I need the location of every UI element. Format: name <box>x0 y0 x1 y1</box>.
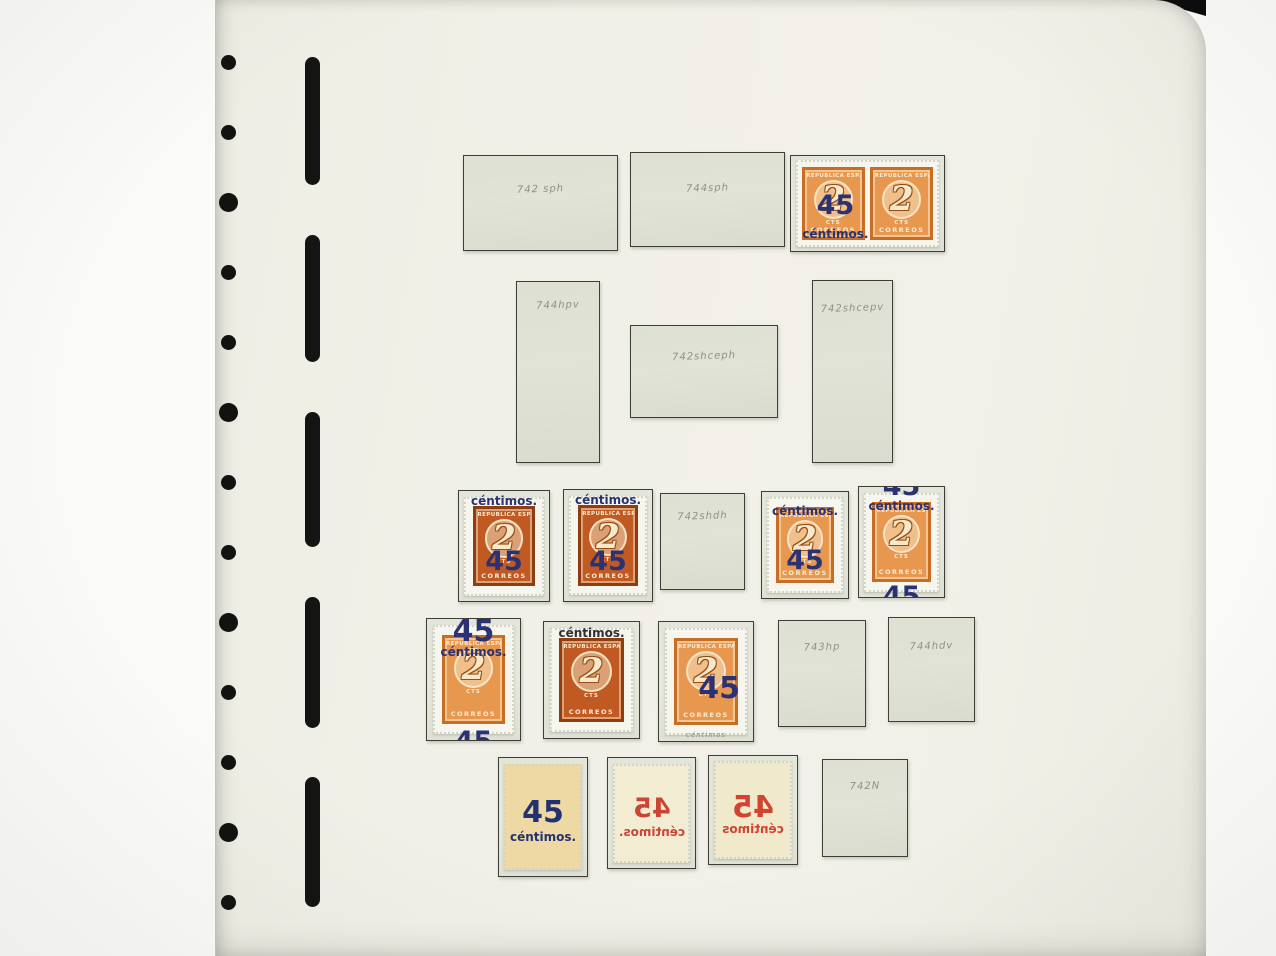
mount-annotation: 742N <box>823 780 907 794</box>
stamp-mount: 744hdv <box>888 617 975 722</box>
stamp-overprint-centimos: céntimos. <box>868 500 934 512</box>
binding-slot <box>305 777 320 907</box>
stamp-design: REPUBLICA ESPAÑOLA2CTSCORREOS <box>559 638 624 722</box>
mount-annotation: 744hpv <box>517 299 599 313</box>
binder-hole <box>221 265 236 280</box>
stamp: REPUBLICA ESPAÑOLA2CTSCORREOScéntimos.45 <box>563 489 653 602</box>
stamp-unit-label: CTS <box>894 554 909 560</box>
mount-annotation: 744sph <box>631 180 784 196</box>
stamp-correos-label: CORREOS <box>451 710 496 718</box>
stamp-overprint-45: 45 <box>817 192 855 219</box>
binder-hole <box>221 755 236 770</box>
stamp-back: 45céntimos. <box>498 757 588 877</box>
stamp-overprint-45: 45 <box>522 798 564 828</box>
stamp-unit-label: CTS <box>584 693 599 699</box>
mount-annotation: 742 sph <box>464 182 617 198</box>
stamp-country-label: REPUBLICA ESPAÑOLA <box>806 173 860 179</box>
stamp: REPUBLICA ESPAÑOLA2CTSCORREOScéntimos.45 <box>458 490 550 602</box>
stamp-country-label: REPUBLICA ESPAÑOLA <box>478 512 531 518</box>
stamp-mount: 742N <box>822 759 908 857</box>
stamp-correos-label: CORREOS <box>683 711 728 719</box>
stamp-numeral: 2 <box>580 654 604 688</box>
mount-annotation: 743hp <box>779 641 865 655</box>
binder-hole <box>219 613 238 632</box>
binding-slot <box>305 235 320 362</box>
stamp-overprint-45: 45 <box>883 486 921 500</box>
stamp-overprint-centimos: céntimos. <box>558 627 624 639</box>
photo-of-stamp-album: { "binder": { "brand_top": "Lighthouse",… <box>0 0 1276 956</box>
binder-hole <box>219 823 238 842</box>
stamp: REPUBLICA ESPAÑOLA2CTSCORREOScéntimos.45 <box>761 491 849 599</box>
stamp-correos-label: CORREOS <box>569 708 614 716</box>
stamp-overprint-centimos: céntimos. <box>772 505 838 517</box>
binder-hole <box>221 475 236 490</box>
stamp-overprint-45: 45 <box>786 547 824 574</box>
stamp-overprint-45: 45 <box>883 583 921 598</box>
stamp-back: 45céntimos <box>708 755 798 865</box>
stamp: REPUBLICA ESPAÑOLA2CTSCORREOScéntimos. <box>543 621 640 739</box>
stamp-overprint-45: 45 <box>455 728 493 741</box>
binder-hole <box>221 55 236 70</box>
stamp-numeral: 2 <box>890 182 914 216</box>
stamp-correos-label: CORREOS <box>879 226 924 234</box>
binder-hole <box>221 685 236 700</box>
stamp-pair: REPUBLICA ESPAÑOLA2CTSCORREOSREPUBLICA E… <box>790 155 945 252</box>
stamp-overprint-45: 45 <box>633 795 671 822</box>
stamp-numeral: 2 <box>890 517 914 551</box>
stamp-mount: 742shceph <box>630 325 778 418</box>
stamp-mount: 744hpv <box>516 281 600 463</box>
stamp-design: REPUBLICA ESPAÑOLA2CTSCORREOS <box>872 502 930 582</box>
stamp-unit-label: CTS <box>466 689 481 695</box>
stamp-mount: 744sph <box>630 152 785 247</box>
stamp-country-label: REPUBLICA ESPAÑOLA <box>875 173 929 179</box>
stamp-numeral-medallion: 2 <box>571 651 612 692</box>
stamp-overprint-centimos: céntimos. <box>440 646 506 658</box>
binder-hole <box>221 545 236 560</box>
stamp-country-label: REPUBLICA ESPAÑOLA <box>678 644 734 650</box>
binding-slot <box>305 412 320 547</box>
stamp-back: 45céntimos. <box>607 757 696 869</box>
stamp-overprint-centimos: céntimos. <box>618 826 684 838</box>
stamp-overprint-centimos: céntimos <box>722 823 784 835</box>
stamp-overprint-45: 45 <box>698 674 740 704</box>
binder-hole <box>219 403 238 422</box>
binder-hole <box>221 335 236 350</box>
stamp: REPUBLICA ESPAÑOLA2CTSCORREOS45céntimos <box>658 621 754 742</box>
stamp-country-label: REPUBLICA ESPAÑOLA <box>563 644 619 650</box>
stamp-mount: 742shdh <box>660 493 745 590</box>
stamp-overprint-centimos: céntimos. <box>575 494 641 506</box>
stamp-overprint-45: 45 <box>589 548 627 575</box>
mount-annotation: 742shceph <box>631 349 777 365</box>
binding-slot <box>305 597 320 728</box>
stamp: REPUBLICA ESPAÑOLA2CTSCORREOS45céntimos.… <box>858 486 945 598</box>
stamp-correos-label: CORREOS <box>879 568 924 576</box>
stamp-overprint-45: 45 <box>453 618 495 647</box>
stamp-mount: 742shcepv <box>812 280 893 463</box>
binder-hole <box>221 895 236 910</box>
stamp-mount: 743hp <box>778 620 866 727</box>
stamp-numeral-medallion: 2 <box>882 180 921 219</box>
stamp-design: REPUBLICA ESPAÑOLA2CTSCORREOS <box>870 167 933 240</box>
mount-annotation: 742shcepv <box>813 301 892 315</box>
stamp: REPUBLICA ESPAÑOLA2CTSCORREOS45céntimos.… <box>426 618 521 741</box>
stamp-overprint-45: 45 <box>732 793 774 823</box>
stamp-unit-label: CTS <box>894 220 909 226</box>
mount-annotation: 742shdh <box>661 510 744 524</box>
stamp-overprint-centimos: céntimos. <box>510 831 576 843</box>
stamp-mount: 742 sph <box>463 155 618 251</box>
stamp-numeral-medallion: 2 <box>883 515 919 553</box>
binding-slot <box>305 57 320 185</box>
perforated-paper: REPUBLICA ESPAÑOLA2CTSCORREOS <box>550 628 634 732</box>
stamp-overprint-centimos: céntimos. <box>471 495 537 507</box>
stamp-overprint-45: 45 <box>485 548 523 575</box>
stamp-overprint-centimos: céntimos <box>686 732 726 739</box>
stamp-overprint-centimos: céntimos. <box>802 228 868 240</box>
binder-hole <box>221 125 236 140</box>
mount-annotation: 744hdv <box>889 639 974 653</box>
binder-hole <box>219 193 238 212</box>
